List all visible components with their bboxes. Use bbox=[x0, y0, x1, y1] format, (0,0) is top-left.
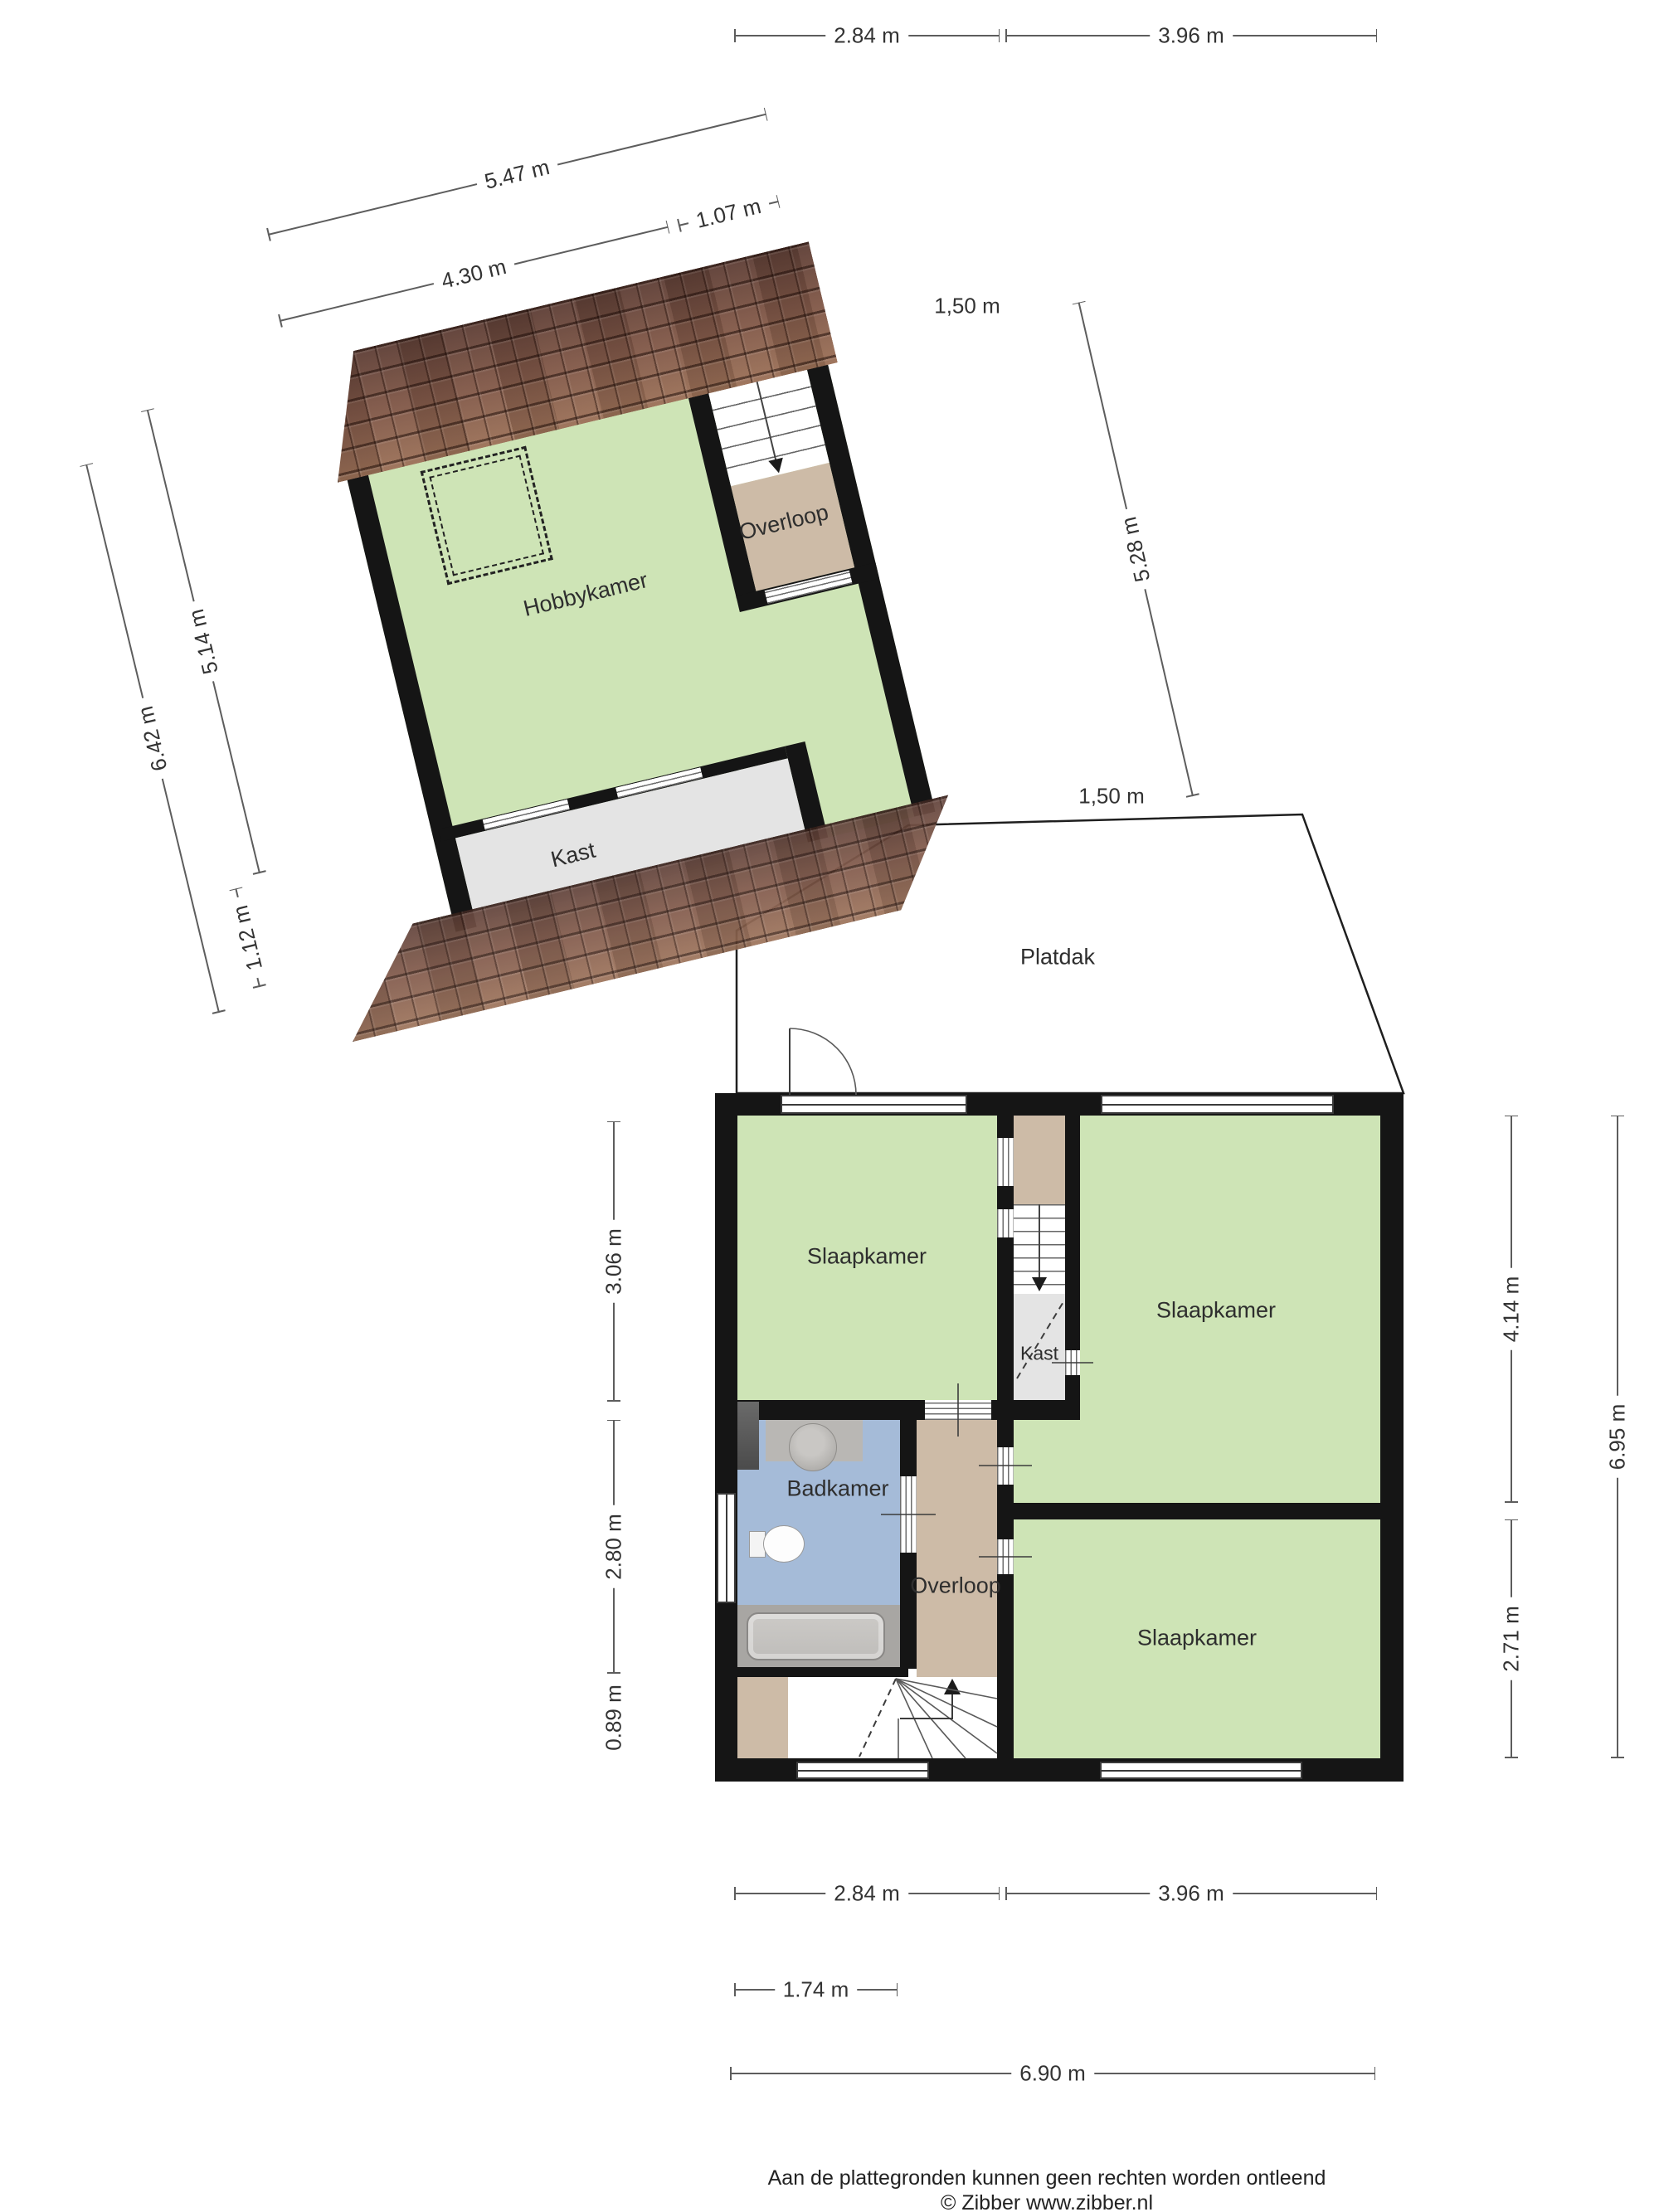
ff-outer-left-wall bbox=[715, 1093, 737, 1782]
dim-label: 5.14 m bbox=[182, 599, 226, 685]
footer-disclaimer: Aan de plattegronden kunnen geen rechten… bbox=[768, 2166, 1326, 2190]
badkamer-label: Badkamer bbox=[786, 1476, 888, 1502]
roof-door-arc bbox=[790, 1028, 856, 1095]
wall-bottombed-left-b bbox=[997, 1574, 1014, 1758]
door-leftbed-hall-b bbox=[997, 1209, 1014, 1237]
dim-label: 6.42 m bbox=[130, 696, 175, 782]
door-overloop-leftbed bbox=[925, 1400, 991, 1420]
slaapkamer-right-room-ext bbox=[1014, 1420, 1080, 1503]
dim-label: 2.80 m bbox=[601, 1505, 627, 1588]
slaapkamer-right-label: Slaapkamer bbox=[1156, 1298, 1276, 1324]
dim-label: 1.07 m bbox=[685, 192, 771, 236]
ff-hall-top bbox=[1014, 1116, 1065, 1204]
footer-copyright: © Zibber www.zibber.nl bbox=[941, 2191, 1153, 2212]
dim-attic_107: 1.07 m bbox=[679, 202, 779, 226]
free-label-knee_bottom: 1,50 m bbox=[1073, 784, 1150, 809]
dim-label: 3.96 m bbox=[1150, 23, 1233, 49]
dim-attic_528: 5.28 m bbox=[1079, 303, 1193, 796]
dim-label: 3.96 m bbox=[1150, 1881, 1233, 1907]
wall-bottombed-left-a bbox=[997, 1519, 1014, 1539]
dim-label: 4.14 m bbox=[1499, 1268, 1525, 1351]
dim-label: 6.90 m bbox=[1011, 2061, 1094, 2087]
wall-badkamer-right-a bbox=[900, 1420, 917, 1476]
shaft bbox=[737, 1402, 759, 1470]
free-label-knee_top: 1,50 m bbox=[929, 294, 1005, 319]
ff-stairs-down-arrow-icon bbox=[944, 1679, 961, 1694]
ff-stairs-guide bbox=[1039, 1204, 1040, 1279]
dim-attic_514: 5.14 m bbox=[148, 410, 260, 873]
door-kast bbox=[1065, 1350, 1080, 1375]
dim-label: 5.47 m bbox=[474, 153, 560, 197]
attic-floorplan bbox=[309, 241, 966, 1014]
wall-bigbed-bottom bbox=[997, 1503, 1380, 1519]
window-top-left bbox=[781, 1095, 967, 1114]
dim-label: 3.06 m bbox=[601, 1220, 627, 1303]
wall-staircol-right-b bbox=[1065, 1375, 1080, 1400]
slaapkamer-left-label: Slaapkamer bbox=[807, 1244, 927, 1270]
wall-row1-bottom-a bbox=[737, 1400, 925, 1420]
window-top-right bbox=[1101, 1095, 1334, 1114]
ff-kast-label: Kast bbox=[1020, 1343, 1058, 1365]
dim-attic_642: 6.42 m bbox=[86, 464, 219, 1013]
ff-stairs-arrow-icon bbox=[1032, 1277, 1047, 1291]
door-overloop-bigbed bbox=[997, 1447, 1014, 1485]
door-leftbed-hall-a bbox=[997, 1138, 1014, 1186]
dim-label: 1.12 m bbox=[226, 895, 270, 981]
dim-label: 0.89 m bbox=[601, 1676, 627, 1759]
wall-row1-bottom-b bbox=[991, 1400, 1080, 1420]
dim-label: 6.95 m bbox=[1605, 1396, 1631, 1479]
sink-basin bbox=[789, 1423, 837, 1471]
bathtub bbox=[747, 1612, 885, 1660]
dim-label: 5.28 m bbox=[1114, 506, 1158, 592]
window-bottom-left bbox=[796, 1762, 929, 1779]
ff-outer-right-wall bbox=[1380, 1093, 1404, 1782]
dim-label: 2.84 m bbox=[825, 23, 908, 49]
window-bottom-right bbox=[1100, 1762, 1302, 1779]
wall-staircol-right-a bbox=[1065, 1116, 1080, 1350]
ff-stairs-down bbox=[788, 1677, 997, 1758]
door-overloop-bottombed bbox=[997, 1539, 1014, 1574]
toilet-bowl bbox=[763, 1525, 805, 1563]
ff-landing-strip bbox=[737, 1677, 788, 1758]
dim-label: 2.71 m bbox=[1499, 1597, 1525, 1680]
platdak-label: Platdak bbox=[1020, 945, 1095, 970]
dim-label: 2.84 m bbox=[825, 1881, 908, 1907]
ff-overloop-label: Overloop bbox=[910, 1573, 1001, 1599]
wall-badkamer-right-b bbox=[900, 1553, 917, 1669]
slaapkamer-bottom-label: Slaapkamer bbox=[1137, 1626, 1257, 1651]
wall-bigbed-left-a bbox=[997, 1420, 1014, 1447]
dim-label: 4.30 m bbox=[431, 252, 517, 297]
floorplan-page: Platdak Hobbykamer Overloop Kast bbox=[0, 0, 1659, 2212]
dim-label: 1.74 m bbox=[775, 1977, 858, 2003]
wall-badkamer-bottom bbox=[737, 1667, 908, 1677]
ff-overloop-room bbox=[917, 1420, 997, 1677]
window-badkamer-left bbox=[717, 1493, 736, 1603]
wall-bigbed-left-b bbox=[997, 1485, 1014, 1503]
dim-attic_112: 1.12 m bbox=[236, 888, 260, 987]
door-badkamer bbox=[900, 1476, 917, 1553]
